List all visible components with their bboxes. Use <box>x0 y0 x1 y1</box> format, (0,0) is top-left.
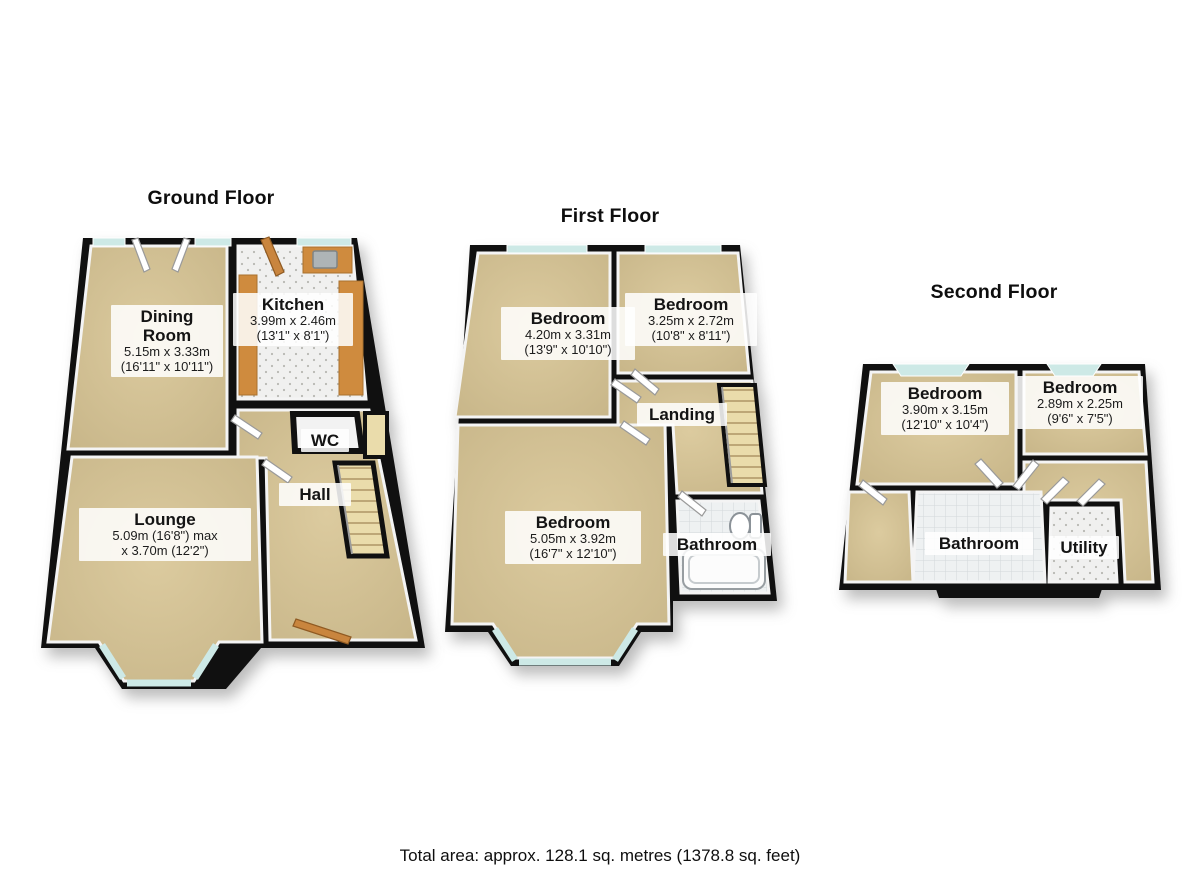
room-floor-landing-left <box>845 492 913 582</box>
room-dimensions-metric: 3.99m x 2.46m <box>237 314 349 329</box>
room-dimensions-metric: 3.90m x 3.15m <box>885 403 1005 418</box>
room-dimensions-imperial: (16'7" x 12'10") <box>509 547 637 562</box>
stairs-upper-landing <box>365 413 387 457</box>
room-label-utility: Utility <box>1049 536 1119 559</box>
room-label-bedroom: Bedroom 2.89m x 2.25m (9'6" x 7'5") <box>1017 376 1143 429</box>
window-dining-right <box>195 238 231 246</box>
kitchen-sink <box>313 251 337 268</box>
room-name: Utility <box>1053 538 1115 557</box>
room-label-lounge: Lounge 5.09m (16'8") max x 3.70m (12'2") <box>79 508 251 561</box>
room-dimensions-imperial: (13'1" x 8'1") <box>237 329 349 344</box>
room-dimensions-imperial: x 3.70m (12'2") <box>83 544 247 559</box>
room-name: WC <box>305 431 345 450</box>
room-label-hall: Hall <box>279 483 351 506</box>
room-dimensions-metric: 2.89m x 2.25m <box>1021 397 1139 412</box>
room-label-bedroom: Bedroom 3.90m x 3.15m (12'10" x 10'4") <box>881 382 1009 435</box>
room-dimensions-metric: 4.20m x 3.31m <box>505 328 631 343</box>
room-name: Bedroom <box>885 384 1005 403</box>
room-name: Bedroom <box>505 309 631 328</box>
room-dimensions-metric: 5.15m x 3.33m <box>115 345 219 360</box>
room-label-kitchen: Kitchen 3.99m x 2.46m (13'1" x 8'1") <box>233 293 353 346</box>
room-name: Landing <box>641 405 723 424</box>
room-name: Bedroom <box>629 295 753 314</box>
room-dimensions-metric: 5.09m (16'8") max <box>83 529 247 544</box>
window-bedroom1 <box>507 245 587 253</box>
total-area-caption: Total area: approx. 128.1 sq. metres (13… <box>0 846 1200 866</box>
second-floor-drawing <box>835 318 1165 608</box>
room-dimensions-imperial: (13'9" x 10'10") <box>505 343 631 358</box>
room-label-wc: WC <box>301 429 349 452</box>
window-kitchen <box>297 238 351 246</box>
room-name: Kitchen <box>237 295 349 314</box>
room-name: Bathroom <box>667 535 767 554</box>
staircase-first <box>719 385 765 485</box>
room-dimensions-imperial: (10'8" x 8'11") <box>629 329 753 344</box>
room-label-bedroom: Bedroom 4.20m x 3.31m (13'9" x 10'10") <box>501 307 635 360</box>
room-label-dining-room: Dining Room 5.15m x 3.33m (16'11" x 10'1… <box>111 305 223 377</box>
room-label-bathroom: Bathroom <box>925 532 1033 555</box>
second-floor-plan: Bedroom 3.90m x 3.15m (12'10" x 10'4") B… <box>835 318 1165 608</box>
room-name: Bathroom <box>929 534 1029 553</box>
room-name: Hall <box>283 485 347 504</box>
room-label-bedroom: Bedroom 5.05m x 3.92m (16'7" x 12'10") <box>505 511 641 564</box>
window-bedroom2 <box>645 245 721 253</box>
second-floor-title: Second Floor <box>835 281 1153 304</box>
bottom-ledge <box>935 586 1103 598</box>
room-dimensions-metric: 3.25m x 2.72m <box>629 314 753 329</box>
room-name: Bedroom <box>509 513 637 532</box>
room-name: Bedroom <box>1021 378 1139 397</box>
ground-floor-title: Ground Floor <box>35 187 387 210</box>
roof-window-left <box>893 364 969 376</box>
first-floor-plan: Bedroom 4.20m x 3.31m (13'9" x 10'10") B… <box>425 235 800 675</box>
room-label-bedroom: Bedroom 3.25m x 2.72m (10'8" x 8'11") <box>625 293 757 346</box>
room-dimensions-imperial: (12'10" x 10'4") <box>885 418 1005 433</box>
room-name: Dining Room <box>115 307 219 345</box>
room-dimensions-metric: 5.05m x 3.92m <box>509 532 637 547</box>
floorplan-page: { "floors": [ { "title": "Ground Floor",… <box>0 0 1200 873</box>
room-name: Lounge <box>83 510 247 529</box>
first-floor-title: First Floor <box>425 205 795 228</box>
room-dimensions-imperial: (16'11" x 10'11") <box>115 360 219 375</box>
roof-window-right <box>1047 364 1101 376</box>
window-dining-left <box>93 238 125 246</box>
ground-floor-plan: Dining Room 5.15m x 3.33m (16'11" x 10'1… <box>35 225 430 710</box>
room-dimensions-imperial: (9'6" x 7'5") <box>1021 412 1139 427</box>
room-label-bathroom: Bathroom <box>663 533 771 556</box>
room-label-landing: Landing <box>637 403 727 426</box>
